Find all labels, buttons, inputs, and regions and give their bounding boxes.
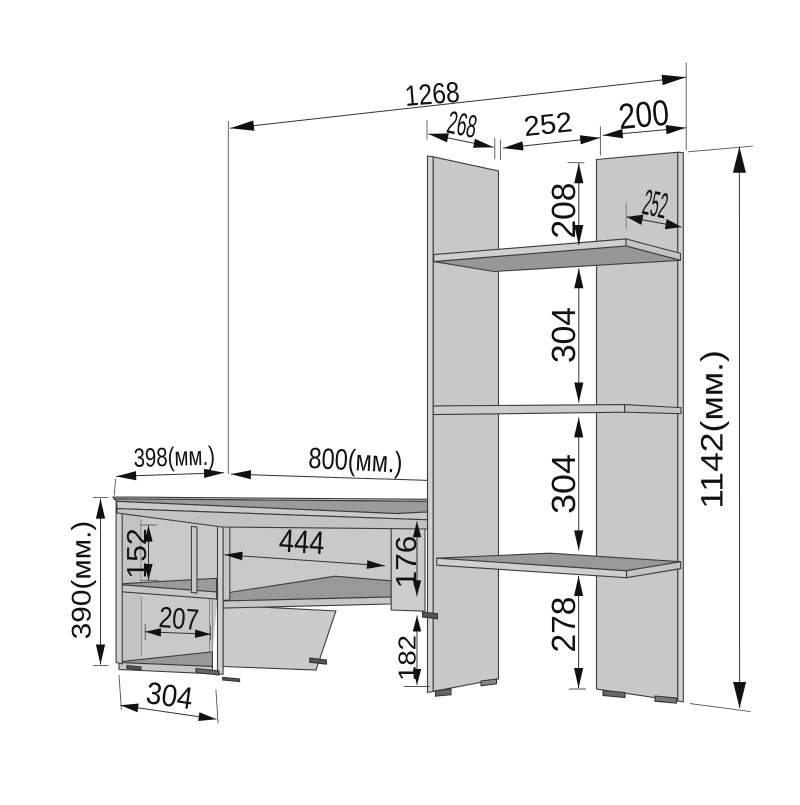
svg-text:304: 304 (546, 454, 583, 514)
svg-text:398(мм.): 398(мм.) (133, 441, 215, 473)
svg-text:252: 252 (522, 106, 574, 142)
svg-text:1142(мм.): 1142(мм.) (695, 350, 730, 509)
svg-text:182: 182 (395, 635, 422, 681)
svg-text:208: 208 (546, 183, 583, 239)
svg-text:176: 176 (391, 536, 423, 589)
svg-text:444: 444 (278, 522, 326, 561)
svg-text:200: 200 (617, 92, 671, 137)
svg-text:304: 304 (546, 307, 583, 363)
svg-text:207: 207 (158, 601, 200, 637)
svg-text:390(мм.): 390(мм.) (67, 521, 97, 639)
svg-text:800(мм.): 800(мм.) (308, 442, 404, 480)
svg-text:278: 278 (546, 597, 583, 653)
svg-text:304: 304 (144, 675, 195, 716)
svg-text:152: 152 (121, 528, 152, 578)
